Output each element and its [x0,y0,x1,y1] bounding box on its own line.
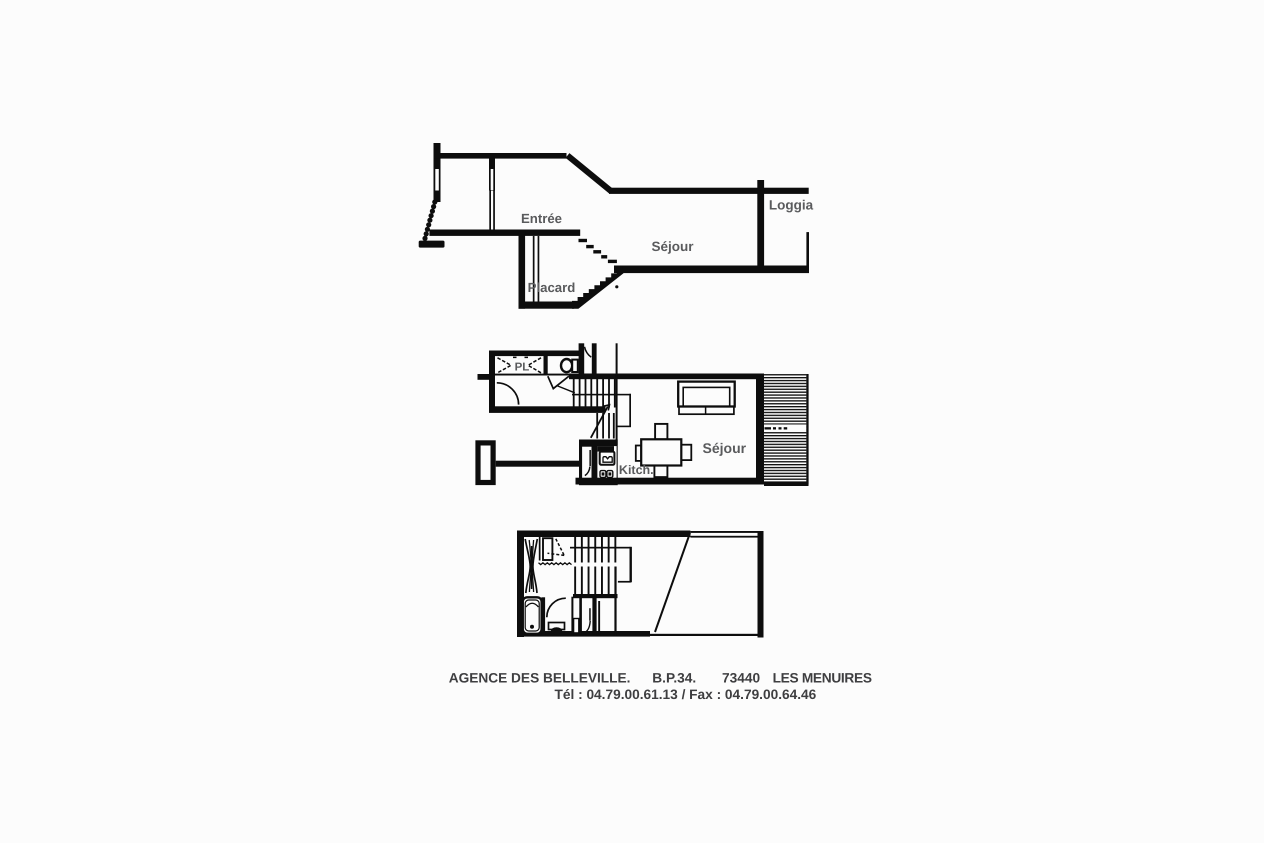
svg-text:AGENCE DES BELLEVILLE.: AGENCE DES BELLEVILLE. [449,671,631,686]
svg-text:Kitch.: Kitch. [619,463,654,477]
svg-text:LES MENUIRES: LES MENUIRES [773,671,872,686]
svg-text:Placard: Placard [528,280,576,295]
svg-text:PL: PL [515,361,530,373]
svg-text:Séjour: Séjour [703,440,747,456]
svg-text:Tél : 04.79.00.61.13 / Fax : 0: Tél : 04.79.00.61.13 / Fax : 04.79.00.64… [555,687,817,702]
svg-text:Entrée: Entrée [521,211,562,226]
svg-text:B.P.34.: B.P.34. [652,671,696,686]
svg-text:Loggia: Loggia [769,198,814,213]
svg-text:Séjour: Séjour [651,239,694,254]
svg-text:73440: 73440 [722,671,760,686]
